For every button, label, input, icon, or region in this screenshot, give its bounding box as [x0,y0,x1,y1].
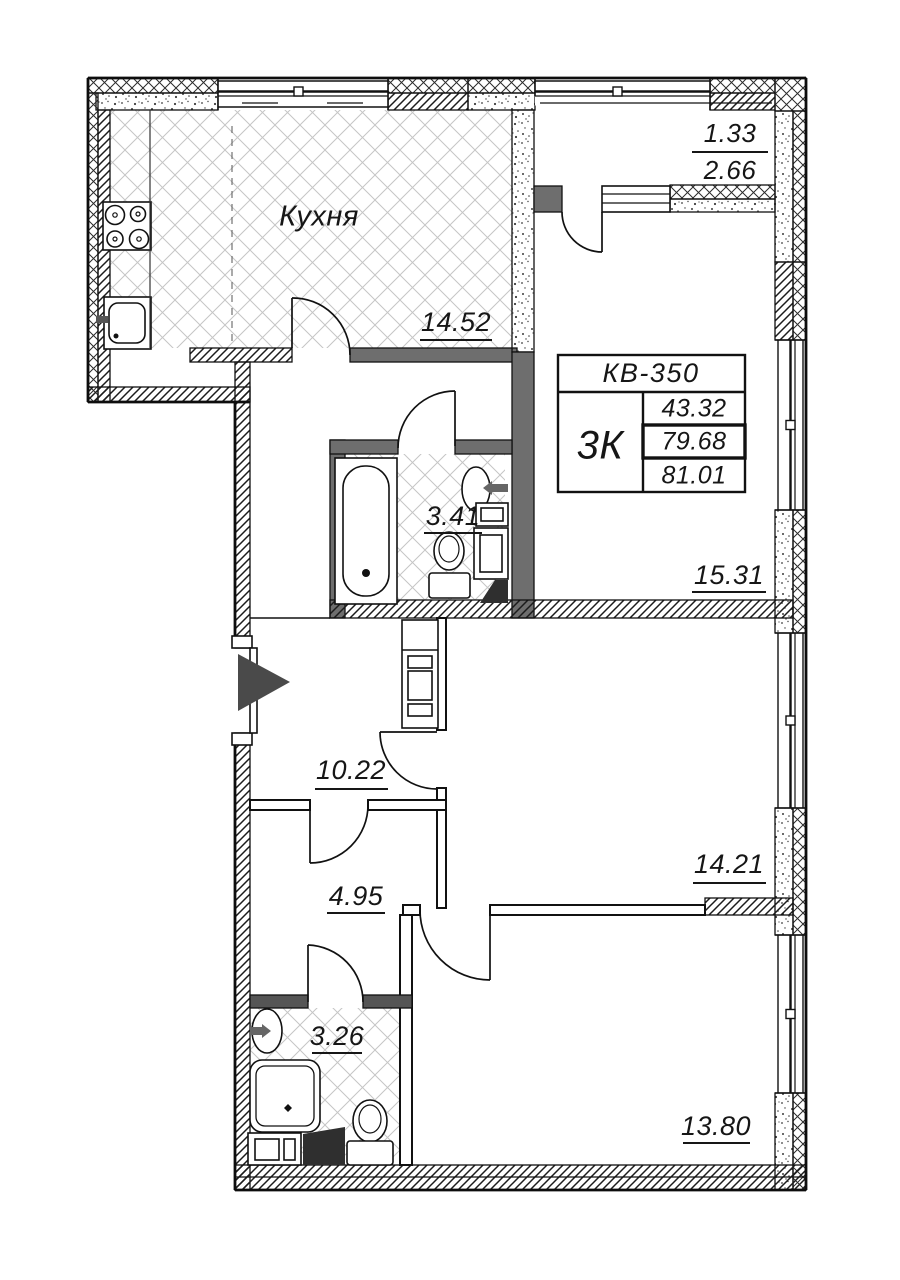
balcony-reduced-area-label: 1.33 [704,118,757,148]
bathroom-area-label: 3.41 [426,501,481,531]
apartment-number-label: КВ-350 [603,358,700,388]
room-divider-wall [330,600,793,618]
kitchen-area-label: 14.52 [421,307,491,337]
shower-room-door [308,945,363,1002]
room-middle-area-label: 14.21 [694,849,764,879]
floor-plan-page: Кухня 14.52 1.33 2.66 15.31 3.41 10.22 1… [0,0,900,1280]
room-floors [110,110,512,1165]
kitchen-window [218,78,388,110]
wardrobe-icon [402,620,438,728]
room-middle-door [380,732,437,789]
bathtub-icon [335,458,397,604]
total-area-value: 79.68 [661,428,726,456]
corridor-door [310,805,368,863]
shower-tray-icon [250,1060,320,1132]
hall-area-label: 10.22 [316,755,386,785]
balcony-wall-stub [534,186,562,212]
room-bottom-area-label: 13.80 [681,1111,751,1141]
balcony-window-unit [602,186,670,212]
balcony-door [562,212,602,252]
apartment-type-label: 3К [577,424,626,468]
living-area-value: 43.32 [661,395,726,423]
room-bottom-door [420,910,490,980]
floor-plan-svg: Кухня 14.52 1.33 2.66 15.31 3.41 10.22 1… [0,0,900,1280]
window-room-middle [775,633,806,808]
title-block: КВ-350 3К 43.32 79.68 81.01 [558,355,745,492]
balcony-full-area-label: 2.66 [703,155,757,185]
entrance [232,636,290,745]
bathroom-door [398,391,455,448]
room-top-area-label: 15.31 [694,560,764,590]
entrance-arrow-icon [238,654,290,711]
corridor-area-label: 4.95 [329,881,384,911]
window-room-bottom [775,935,806,1093]
total-area-with-balcony-value: 81.01 [661,462,726,490]
stove-icon [103,202,151,250]
window-room-top [775,340,806,510]
kitchen-name-label: Кухня [279,201,359,233]
shower-room-area-label: 3.26 [310,1021,365,1051]
washing-machine-icon [248,1133,301,1165]
kitchen-sink-icon [96,297,151,349]
